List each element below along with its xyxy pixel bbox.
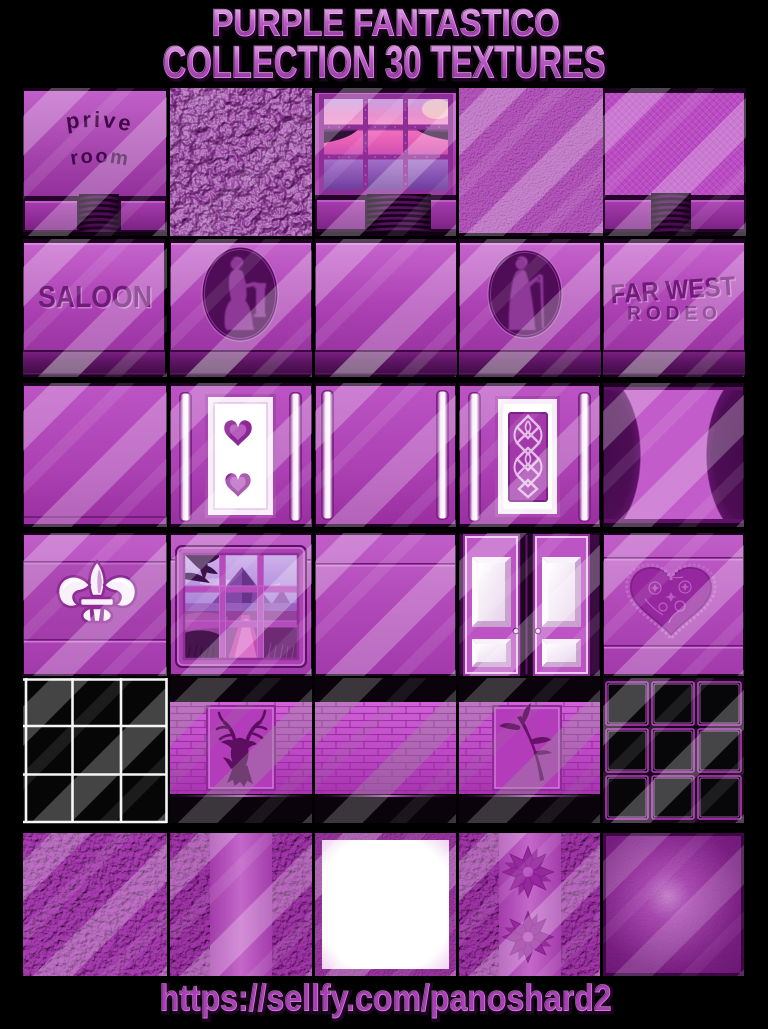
svg-text:https://sellfy.com/panoshard2: https://sellfy.com/panoshard2 bbox=[160, 978, 612, 1019]
svg-text:COLLECTION 30 TEXTURES: COLLECTION 30 TEXTURES bbox=[162, 36, 605, 87]
